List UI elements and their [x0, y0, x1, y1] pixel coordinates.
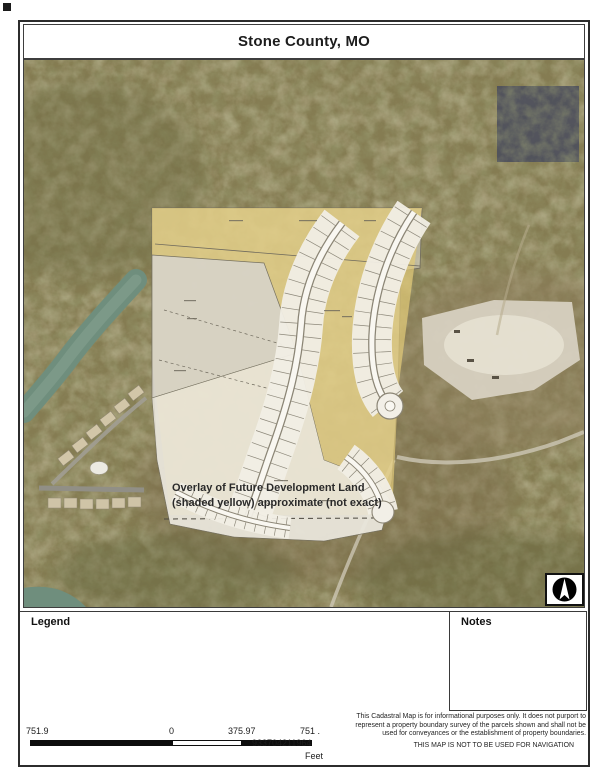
disclaimer-line2: represent a property boundary survey of …: [336, 722, 586, 731]
overlay-annotation: Overlay of Future Development Land (shad…: [172, 481, 402, 510]
north-arrow: [545, 573, 584, 606]
legend-label: Legend: [20, 612, 449, 628]
scale-label-left: 751.9: [26, 726, 49, 736]
legend-panel: Legend: [20, 611, 449, 711]
notes-label: Notes: [450, 612, 586, 628]
notes-panel: Notes: [449, 611, 587, 711]
north-arrow-icon: [549, 576, 580, 603]
overlay-annotation-line1: Overlay of Future Development Land: [172, 481, 402, 496]
scale-bar-segment: [30, 740, 172, 746]
page-title: Stone County, MO: [238, 33, 370, 50]
scale-label-mid: 375.97: [228, 726, 256, 736]
scale-bar-segment: [172, 740, 242, 746]
scale-label-right-wrap: 933704211964: [252, 738, 311, 748]
cadastral-map-page: Stone County, MO: [0, 0, 600, 776]
scale-label-zero: 0: [169, 726, 174, 736]
dark-imagery-tile: [497, 86, 579, 162]
scale-label-right: 751 .: [300, 726, 320, 736]
disclaimer-navigation-warning: THIS MAP IS NOT TO BE USED FOR NAVIGATIO…: [336, 742, 586, 751]
disclaimer-line3: used for conveyances or the establishmen…: [336, 730, 586, 739]
disclaimer: This Cadastral Map is for informational …: [336, 713, 586, 750]
overlay-annotation-line2: (shaded yellow) approximate (not exact): [172, 496, 402, 511]
scale-unit-label: Feet: [305, 751, 323, 761]
title-bar: Stone County, MO: [23, 24, 585, 59]
corner-mark: [3, 3, 11, 11]
map-viewport[interactable]: Overlay of Future Development Land (shad…: [23, 59, 585, 608]
disclaimer-line1: This Cadastral Map is for informational …: [336, 713, 586, 722]
aerial-imagery: [24, 60, 584, 607]
